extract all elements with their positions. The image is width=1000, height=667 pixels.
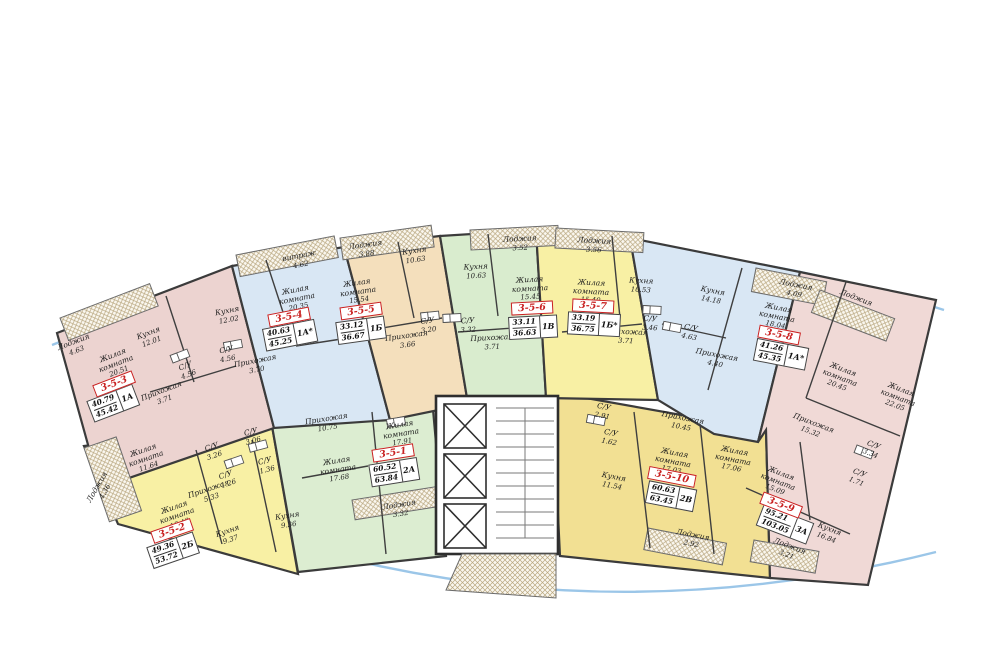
bathroom-fixtures — [421, 311, 440, 321]
apartment-id: 3-5-7 — [579, 300, 607, 312]
apartment-type: 1Б — [366, 317, 386, 340]
area-total: 36.67 — [341, 330, 366, 343]
apartment-id: 3-5-6 — [518, 302, 546, 314]
apartment-area-box: 33.1936.751Б* — [567, 311, 621, 336]
building-core — [436, 396, 558, 598]
apartment-type: 1А* — [783, 345, 808, 369]
loggia-hatch — [555, 228, 644, 253]
floor-plan-canvas: Лоджия4.63 Жилая комната20.51 Кухня12.01… — [0, 0, 1000, 667]
apartment-type: 1В — [539, 316, 557, 337]
area-total: 36.75 — [571, 323, 595, 334]
area-total: 36.63 — [513, 327, 537, 338]
apartment-type: 1А* — [292, 320, 317, 344]
apartment-id-badge[interactable]: 3-5-6 — [511, 300, 553, 315]
apartment-area-box: 33.1136.631В — [508, 314, 558, 339]
apartment-type: 1Б* — [597, 314, 620, 336]
apartment-type: 2А — [399, 458, 419, 481]
apartment-id-badge[interactable]: 3-5-7 — [572, 298, 614, 313]
loggia-hatch — [470, 225, 559, 250]
bathroom-fixtures — [443, 314, 461, 323]
apartment-type: 2В — [675, 487, 696, 510]
bathroom-fixtures — [643, 306, 661, 315]
entrance-hatch — [446, 554, 556, 598]
floor-plan-drawing — [0, 0, 1000, 667]
